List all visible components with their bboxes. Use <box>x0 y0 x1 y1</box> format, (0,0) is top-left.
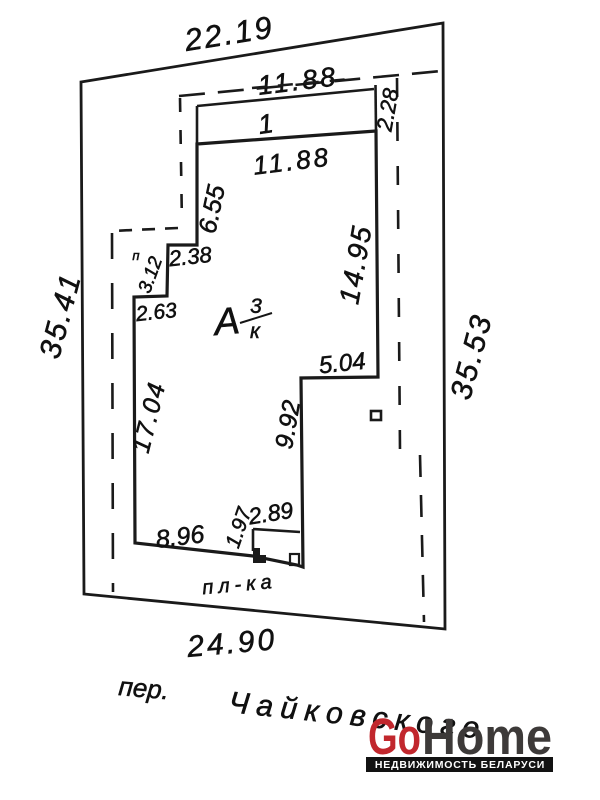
svg-text:2.63: 2.63 <box>134 299 178 326</box>
svg-text:5.04: 5.04 <box>318 348 367 380</box>
svg-text:Home: Home <box>422 708 552 765</box>
svg-text:п: п <box>132 248 139 263</box>
svg-text:2.38: 2.38 <box>167 242 214 272</box>
svg-text:8.96: 8.96 <box>154 520 206 554</box>
svg-text:к: к <box>250 320 261 343</box>
svg-text:Go: Go <box>368 708 421 765</box>
svg-text:пер.: пер. <box>117 671 170 705</box>
svg-text:НЕДВИЖИМОСТЬ БЕЛАРУСИ: НЕДВИЖИМОСТЬ БЕЛАРУСИ <box>375 759 545 771</box>
svg-text:А: А <box>211 300 242 344</box>
svg-text:3: 3 <box>250 295 262 318</box>
